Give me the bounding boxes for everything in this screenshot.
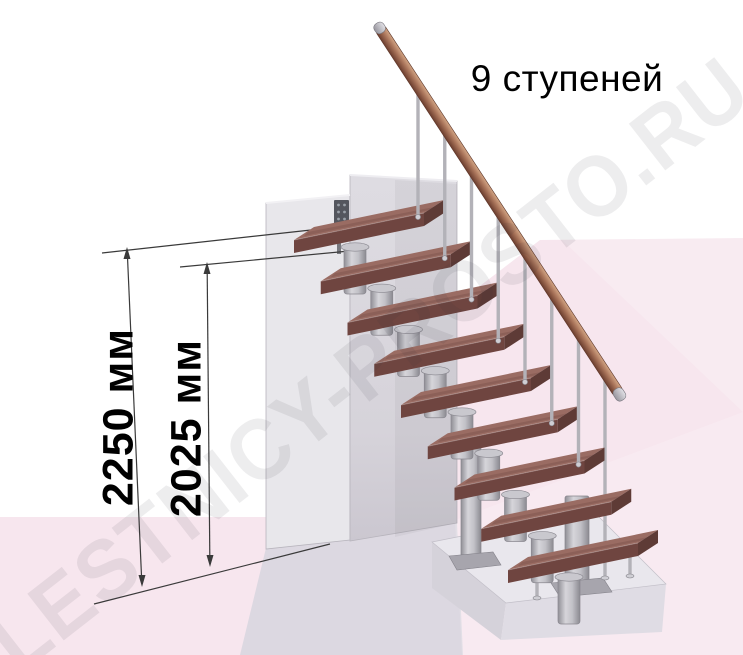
baluster-collar xyxy=(576,462,581,467)
dimension-label-2250: 2250 мм xyxy=(95,328,144,506)
dimension-label-2025: 2025 мм xyxy=(163,339,212,517)
baluster-collar xyxy=(522,379,527,384)
baluster-collar xyxy=(496,338,501,343)
staircase-diagram: LESTNICY-PROSTO.RU 9 ступеней 2250 мм 20… xyxy=(0,0,743,655)
baluster-collar xyxy=(469,297,474,302)
baluster-collar xyxy=(415,214,420,219)
baluster-collar xyxy=(549,421,554,426)
baluster-collar xyxy=(442,256,447,261)
steps-count-label: 9 ступеней xyxy=(471,58,664,100)
